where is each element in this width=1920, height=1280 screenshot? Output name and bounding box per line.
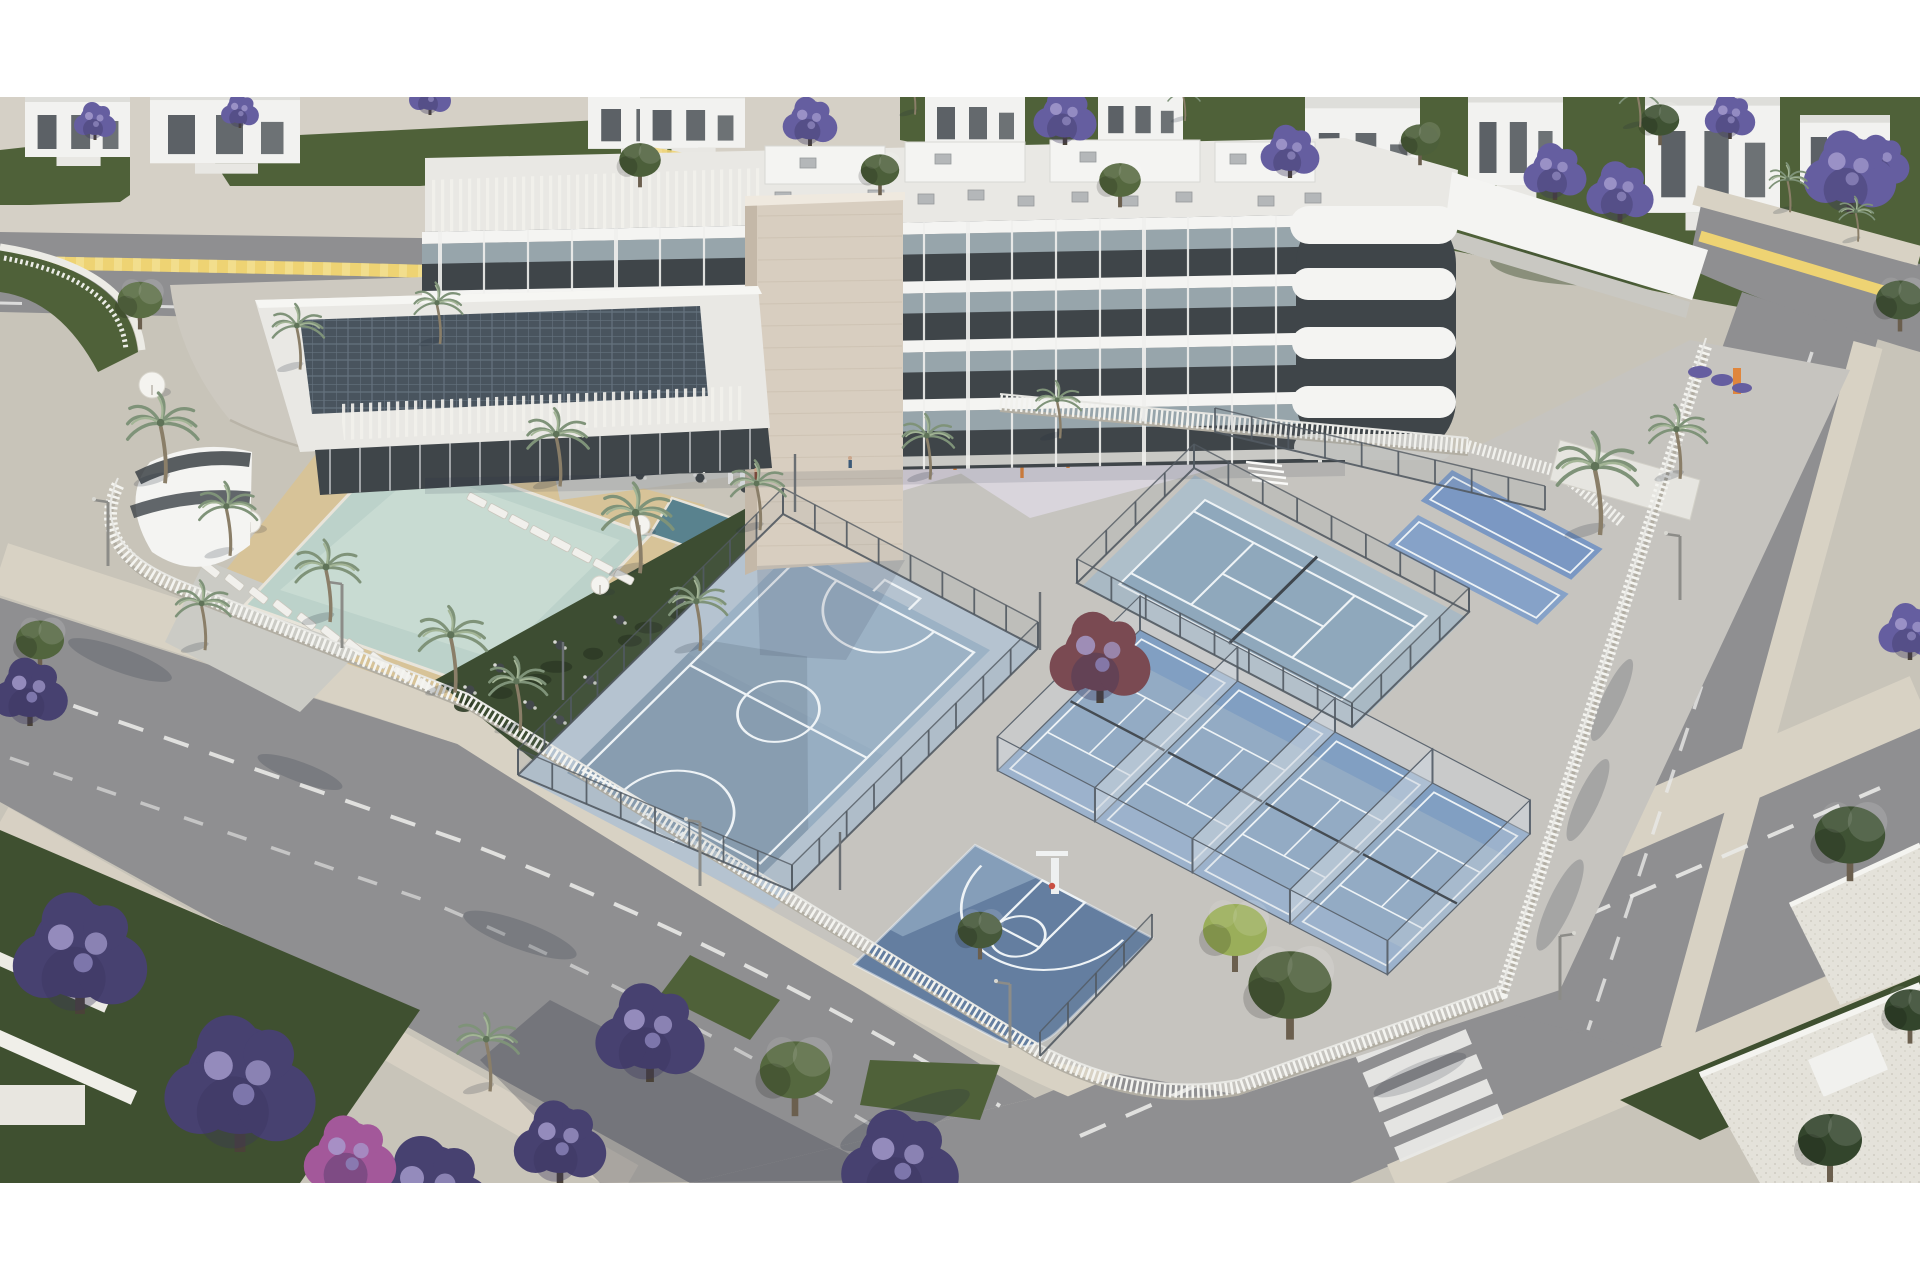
render-canvas bbox=[0, 0, 1920, 1280]
background-house bbox=[150, 92, 300, 174]
person bbox=[848, 456, 852, 468]
amenity-wing bbox=[255, 286, 772, 495]
letterbox-bottom bbox=[0, 1183, 1920, 1280]
scene bbox=[0, 43, 1920, 1250]
letterbox-top bbox=[0, 0, 1920, 97]
aerial-render bbox=[0, 0, 1920, 1280]
